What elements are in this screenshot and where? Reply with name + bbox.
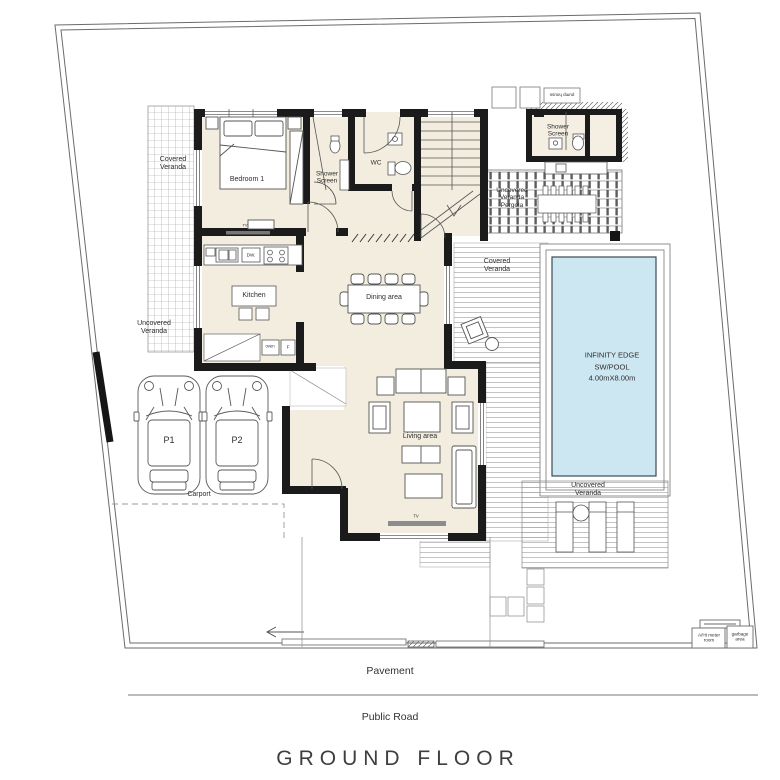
gate-direction-arrow — [267, 627, 304, 637]
entry-porch — [290, 368, 346, 406]
pool-house-roof-hatch-right — [622, 109, 628, 162]
car-p1 — [134, 376, 204, 494]
pergola-post — [610, 231, 620, 241]
stepping-stones — [490, 569, 544, 622]
carport-dashed-outline — [112, 504, 284, 541]
sun-loungers — [556, 502, 634, 552]
car-p2 — [202, 376, 272, 494]
annex-meter-garbage — [692, 620, 753, 648]
deck-strip-upper — [454, 243, 548, 363]
floor-plan-drawing — [0, 0, 780, 780]
pergola-table-set — [538, 186, 596, 222]
swimming-pool — [552, 257, 656, 476]
ground-floor-plan: Covered Veranda Uncovered Veranda Bedroo… — [0, 0, 780, 780]
entrance-gate — [282, 639, 544, 647]
boundary-wall-segment — [96, 352, 110, 442]
covered-veranda-left-area — [148, 106, 194, 352]
deck-front — [420, 541, 490, 567]
